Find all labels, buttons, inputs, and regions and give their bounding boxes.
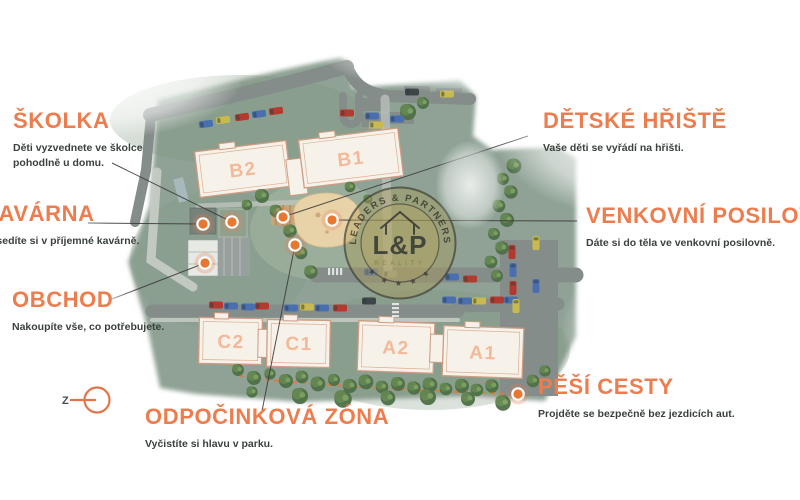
- logo-subtitle: REALITY: [374, 260, 426, 267]
- marker-odpocinkova-zona: [285, 235, 306, 256]
- callout-skolka-desc: Děti vyzvednete ve školce pohodlně u dom…: [13, 141, 161, 170]
- callout-detske-hriste-desc: Vaše děti se vyřádí na hřišti.: [543, 141, 727, 156]
- building-a1: A1: [429, 320, 524, 378]
- callout-venkovni-posilovna-desc: Dáte si do těla ve venkovní posilovně.: [586, 236, 800, 251]
- callout-kavarna-desc: Posedíte si v příjemné kavárně.: [0, 234, 139, 249]
- callout-detske-hriste-title: DĚTSKÉ HŘIŠTĚ: [543, 110, 727, 132]
- callout-odpocinkova-zona-title: ODPOČINKOVÁ ZÓNA: [145, 406, 389, 428]
- callout-kavarna: KAVÁRNA Posedíte si v příjemné kavárně.: [0, 203, 139, 249]
- callout-odpocinkova-zona-desc: Vyčistíte si hlavu v parku.: [145, 437, 389, 452]
- svg-text:B2: B2: [228, 158, 258, 182]
- marker-skolka: [222, 212, 243, 233]
- building-c1: C1: [258, 314, 331, 367]
- marker-kavarna: [193, 214, 214, 235]
- callout-skolka-title: ŠKOLKA: [13, 110, 161, 132]
- callout-obchod: OBCHOD Nakoupíte vše, co potřebujete.: [12, 289, 164, 335]
- svg-text:C2: C2: [217, 332, 245, 353]
- callout-pesi-cesty-title: PĚŠÍ CESTY: [538, 376, 735, 398]
- callout-kavarna-title: KAVÁRNA: [0, 203, 139, 225]
- building-a2: A2: [357, 316, 435, 374]
- svg-text:A1: A1: [469, 343, 497, 365]
- callout-odpocinkova-zona: ODPOČINKOVÁ ZÓNA Vyčistíte si hlavu v pa…: [145, 406, 389, 452]
- callout-pesi-cesty-desc: Projděte se bezpečně bez jezdicích aut.: [538, 407, 735, 422]
- svg-text:A2: A2: [382, 338, 410, 360]
- compass-letter: Z: [62, 395, 69, 407]
- callout-skolka: ŠKOLKA Děti vyzvednete ve školce pohodln…: [13, 110, 161, 170]
- marker-detske-hriste: [273, 207, 294, 228]
- callout-obchod-desc: Nakoupíte vše, co potřebujete.: [12, 320, 164, 335]
- building-c2: C2: [199, 312, 263, 364]
- marker-pesi-cesty: [508, 384, 529, 405]
- callout-venkovni-posilovna-title: VENKOVNÍ POSILOVNA: [586, 205, 800, 227]
- svg-text:B1: B1: [336, 147, 366, 171]
- site-plan-page: B2 B1 C2 C1: [0, 0, 800, 500]
- logo-monogram: L&P: [373, 230, 428, 260]
- callout-venkovni-posilovna: VENKOVNÍ POSILOVNA Dáte si do těla ve ve…: [586, 205, 800, 251]
- callout-obchod-title: OBCHOD: [12, 289, 164, 311]
- marker-obchod: [195, 253, 216, 274]
- svg-text:C1: C1: [285, 334, 313, 355]
- callout-pesi-cesty: PĚŠÍ CESTY Projděte se bezpečně bez jezd…: [538, 376, 735, 422]
- marker-venkovni-posilovna: [322, 210, 343, 231]
- callout-detske-hriste: DĚTSKÉ HŘIŠTĚ Vaše děti se vyřádí na hři…: [543, 110, 727, 156]
